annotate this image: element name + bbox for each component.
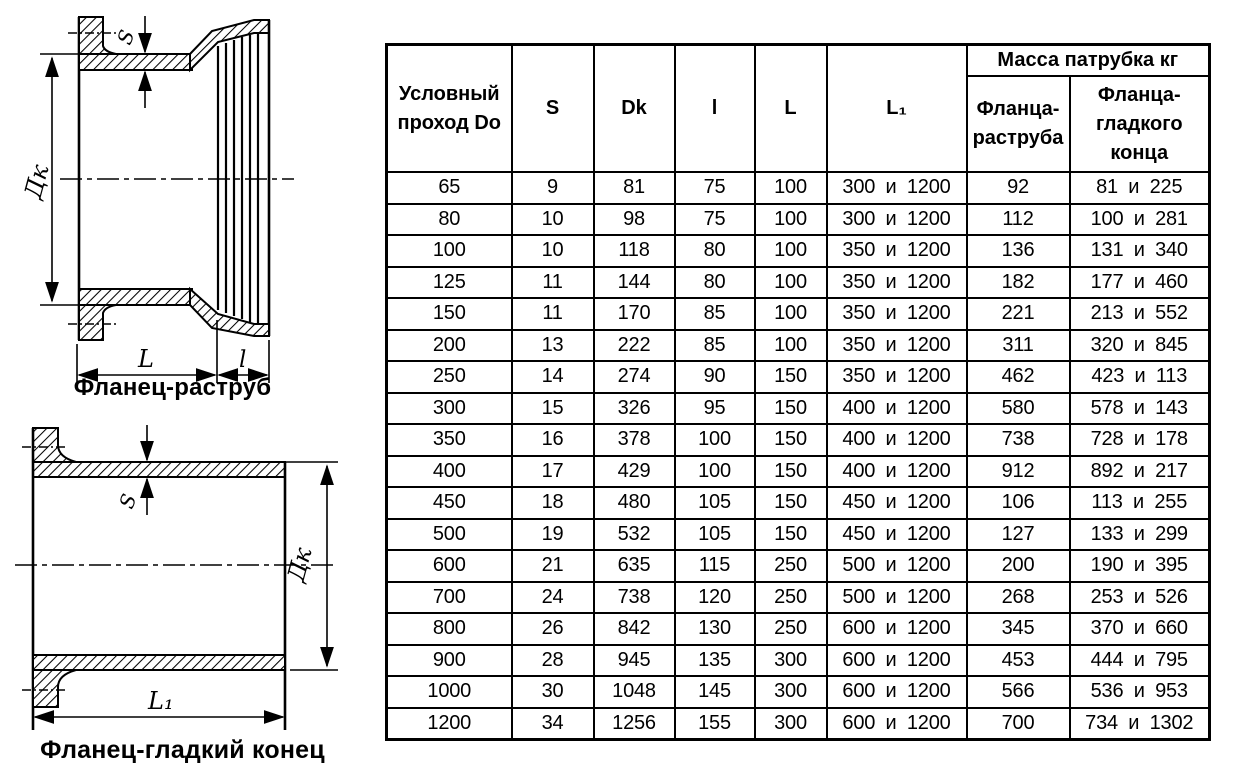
- col-header-l-big: L: [755, 45, 827, 173]
- table-cell: 28: [512, 645, 594, 677]
- table-cell: 150: [755, 519, 827, 551]
- table-cell: 26: [512, 613, 594, 645]
- table-cell: 150: [755, 456, 827, 488]
- s-label: S: [112, 27, 139, 48]
- table-cell: 600 и 1200: [827, 645, 967, 677]
- table-cell: 118: [594, 235, 675, 267]
- table-cell: 345: [967, 613, 1070, 645]
- col-header-l1: L₁: [827, 45, 967, 173]
- table-cell: 900: [387, 645, 512, 677]
- table-cell: 600: [387, 550, 512, 582]
- table-cell: 320 и 845: [1070, 330, 1210, 362]
- table-cell: 423 и 113: [1070, 361, 1210, 393]
- s-label: S: [114, 491, 141, 512]
- flange-plain-end-drawing: S Дк L₁: [0, 415, 345, 745]
- table-cell: 120: [675, 582, 755, 614]
- table-cell: 536 и 953: [1070, 676, 1210, 708]
- table-cell: 136: [967, 235, 1070, 267]
- table-cell: 80: [675, 235, 755, 267]
- table-cell: 1000: [387, 676, 512, 708]
- table-cell: 566: [967, 676, 1070, 708]
- l1-dimension: L₁: [35, 687, 283, 717]
- table-cell: 100 и 281: [1070, 204, 1210, 236]
- table-cell: 462: [967, 361, 1070, 393]
- table-cell: 150: [755, 424, 827, 456]
- caption-flange-socket: Фланец-раструб: [25, 374, 320, 402]
- table-cell: 145: [675, 676, 755, 708]
- table-cell: 400 и 1200: [827, 393, 967, 425]
- table-cell: 11: [512, 267, 594, 299]
- table-cell: 350 и 1200: [827, 330, 967, 362]
- table-cell: 150: [755, 393, 827, 425]
- table-cell: 400: [387, 456, 512, 488]
- table-cell: 100: [755, 204, 827, 236]
- table-cell: 10: [512, 204, 594, 236]
- col-header-uslovny-prohod: Условный проход Do: [387, 45, 512, 173]
- table-cell: 112: [967, 204, 1070, 236]
- table-cell: 450 и 1200: [827, 487, 967, 519]
- table-cell: 144: [594, 267, 675, 299]
- table-cell: 300 и 1200: [827, 204, 967, 236]
- table-cell: 945: [594, 645, 675, 677]
- table-cell: 95: [675, 393, 755, 425]
- table-cell: 738: [594, 582, 675, 614]
- table-row: 1251114480100350 и 1200182177 и 460: [387, 267, 1210, 299]
- dk-label: Дк: [18, 161, 54, 203]
- col-header-l-small: l: [675, 45, 755, 173]
- table-cell: 250: [755, 582, 827, 614]
- table-cell: 125: [387, 267, 512, 299]
- table-row: 80026842130250600 и 1200345370 и 660: [387, 613, 1210, 645]
- table-cell: 9: [512, 172, 594, 204]
- table-cell: 150: [387, 298, 512, 330]
- table-cell: 700: [387, 582, 512, 614]
- table-cell: 370 и 660: [1070, 613, 1210, 645]
- table-cell: 105: [675, 487, 755, 519]
- table-row: 2001322285100350 и 1200311320 и 845: [387, 330, 1210, 362]
- table-cell: 600 и 1200: [827, 613, 967, 645]
- table-row: 2501427490150350 и 1200462423 и 113: [387, 361, 1210, 393]
- table-cell: 98: [594, 204, 675, 236]
- table-cell: 34: [512, 708, 594, 740]
- table-cell: 912: [967, 456, 1070, 488]
- table-row: 35016378100150400 и 1200738728 и 178: [387, 424, 1210, 456]
- dk-label: Дк: [281, 544, 317, 586]
- table-cell: 100: [387, 235, 512, 267]
- table-cell: 350 и 1200: [827, 361, 967, 393]
- table-cell: 100: [755, 330, 827, 362]
- table-row: 45018480105150450 и 1200106113 и 255: [387, 487, 1210, 519]
- caption-flange-plain-end: Фланец-гладкий конец: [15, 736, 350, 765]
- table-cell: 635: [594, 550, 675, 582]
- table-cell: 400 и 1200: [827, 456, 967, 488]
- table-body: 6598175100300 и 12009281 и 2258010987510…: [387, 172, 1210, 740]
- table-cell: 300 и 1200: [827, 172, 967, 204]
- l-big-label: L: [137, 345, 154, 373]
- table-cell: 24: [512, 582, 594, 614]
- flange-bottom-block: [79, 305, 116, 340]
- table-cell: 105: [675, 519, 755, 551]
- table-cell: 700: [967, 708, 1070, 740]
- table-cell: 842: [594, 613, 675, 645]
- table-cell: 1048: [594, 676, 675, 708]
- table-cell: 268: [967, 582, 1070, 614]
- table-cell: 200: [967, 550, 1070, 582]
- table-cell: 221: [967, 298, 1070, 330]
- table-cell: 131 и 340: [1070, 235, 1210, 267]
- table-cell: 190 и 395: [1070, 550, 1210, 582]
- table-cell: 100: [755, 298, 827, 330]
- pipe-wall-top: [33, 462, 285, 477]
- table-cell: 400 и 1200: [827, 424, 967, 456]
- table-cell: 500 и 1200: [827, 550, 967, 582]
- table-row: 1501117085100350 и 1200221213 и 552: [387, 298, 1210, 330]
- table-cell: 429: [594, 456, 675, 488]
- table-cell: 734 и 1302: [1070, 708, 1210, 740]
- table-row: 80109875100300 и 1200112100 и 281: [387, 204, 1210, 236]
- table-cell: 13: [512, 330, 594, 362]
- table-cell: 80: [387, 204, 512, 236]
- pipe-wall-top: [79, 54, 192, 70]
- table-cell: 80: [675, 267, 755, 299]
- table-cell: 222: [594, 330, 675, 362]
- flange-socket-drawing: Дк S L l: [2, 2, 347, 402]
- table-cell: 500 и 1200: [827, 582, 967, 614]
- table-cell: 728 и 178: [1070, 424, 1210, 456]
- table-row: 1200341256155300600 и 1200700734 и 1302: [387, 708, 1210, 740]
- table-row: 60021635115250500 и 1200200190 и 395: [387, 550, 1210, 582]
- table-cell: 100: [755, 172, 827, 204]
- table-cell: 106: [967, 487, 1070, 519]
- table-cell: 127: [967, 519, 1070, 551]
- table-cell: 253 и 526: [1070, 582, 1210, 614]
- l1-label: L₁: [147, 687, 174, 715]
- table-cell: 92: [967, 172, 1070, 204]
- table-cell: 16: [512, 424, 594, 456]
- table-cell: 450 и 1200: [827, 519, 967, 551]
- table-cell: 10: [512, 235, 594, 267]
- table-cell: 250: [387, 361, 512, 393]
- table-cell: 65: [387, 172, 512, 204]
- table-row: 90028945135300600 и 1200453444 и 795: [387, 645, 1210, 677]
- table-cell: 200: [387, 330, 512, 362]
- table-cell: 326: [594, 393, 675, 425]
- pipe-wall-bottom: [79, 289, 192, 305]
- l-small-label: l: [239, 347, 246, 373]
- table-row: 6598175100300 и 12009281 и 225: [387, 172, 1210, 204]
- table-cell: 133 и 299: [1070, 519, 1210, 551]
- table-row: 50019532105150450 и 1200127133 и 299: [387, 519, 1210, 551]
- table-cell: 350 и 1200: [827, 235, 967, 267]
- table-cell: 213 и 552: [1070, 298, 1210, 330]
- table-cell: 800: [387, 613, 512, 645]
- table-row: 3001532695150400 и 1200580578 и 143: [387, 393, 1210, 425]
- table-cell: 11: [512, 298, 594, 330]
- table-cell: 892 и 217: [1070, 456, 1210, 488]
- table-cell: 580: [967, 393, 1070, 425]
- table-cell: 155: [675, 708, 755, 740]
- table-cell: 81: [594, 172, 675, 204]
- table-cell: 300: [755, 676, 827, 708]
- table-cell: 100: [755, 235, 827, 267]
- table-cell: 350 и 1200: [827, 298, 967, 330]
- table-cell: 17: [512, 456, 594, 488]
- table-cell: 1200: [387, 708, 512, 740]
- table-cell: 135: [675, 645, 755, 677]
- table-cell: 30: [512, 676, 594, 708]
- flange-bottom-block: [33, 670, 76, 707]
- table-cell: 15: [512, 393, 594, 425]
- table-cell: 578 и 143: [1070, 393, 1210, 425]
- table-cell: 100: [675, 456, 755, 488]
- flange-top-block: [33, 428, 76, 462]
- table-cell: 19: [512, 519, 594, 551]
- table-cell: 300: [755, 708, 827, 740]
- table-cell: 81 и 225: [1070, 172, 1210, 204]
- table-cell: 177 и 460: [1070, 267, 1210, 299]
- table-cell: 113 и 255: [1070, 487, 1210, 519]
- pipe-spec-table: Условный проход Do S Dk l L L₁ Масса пат…: [385, 43, 1211, 741]
- table-cell: 300: [387, 393, 512, 425]
- mass-col-gladkogo-konca: Фланца- гладкого конца: [1070, 76, 1210, 172]
- dk-dimension: Дк: [281, 466, 338, 670]
- table-row: 40017429100150400 и 1200912892 и 217: [387, 456, 1210, 488]
- col-header-s: S: [512, 45, 594, 173]
- table-cell: 532: [594, 519, 675, 551]
- flange-top-block: [79, 17, 116, 54]
- table-cell: 100: [675, 424, 755, 456]
- table-cell: 600 и 1200: [827, 676, 967, 708]
- table-cell: 274: [594, 361, 675, 393]
- table-cell: 1256: [594, 708, 675, 740]
- table-row: 1001011880100350 и 1200136131 и 340: [387, 235, 1210, 267]
- table-cell: 21: [512, 550, 594, 582]
- table-cell: 75: [675, 204, 755, 236]
- table-cell: 150: [755, 361, 827, 393]
- table-cell: 500: [387, 519, 512, 551]
- table-cell: 18: [512, 487, 594, 519]
- col-header-dk: Dk: [594, 45, 675, 173]
- table-cell: 480: [594, 487, 675, 519]
- table-cell: 100: [755, 267, 827, 299]
- table-cell: 250: [755, 613, 827, 645]
- table-cell: 182: [967, 267, 1070, 299]
- mass-group-header: Масса патрубка кг: [967, 45, 1210, 77]
- table-cell: 453: [967, 645, 1070, 677]
- table-cell: 75: [675, 172, 755, 204]
- table-cell: 115: [675, 550, 755, 582]
- table-cell: 85: [675, 330, 755, 362]
- table-cell: 150: [755, 487, 827, 519]
- pipe-wall-bottom: [33, 655, 285, 670]
- table-cell: 14: [512, 361, 594, 393]
- table-cell: 300: [755, 645, 827, 677]
- table-cell: 311: [967, 330, 1070, 362]
- table-cell: 600 и 1200: [827, 708, 967, 740]
- table-cell: 250: [755, 550, 827, 582]
- table-row: 70024738120250500 и 1200268253 и 526: [387, 582, 1210, 614]
- table-cell: 130: [675, 613, 755, 645]
- table-cell: 350 и 1200: [827, 267, 967, 299]
- table-cell: 738: [967, 424, 1070, 456]
- table-cell: 85: [675, 298, 755, 330]
- table-cell: 444 и 795: [1070, 645, 1210, 677]
- table-cell: 90: [675, 361, 755, 393]
- table-cell: 170: [594, 298, 675, 330]
- mass-col-rastruba: Фланца- раструба: [967, 76, 1070, 172]
- table-cell: 450: [387, 487, 512, 519]
- table-cell: 350: [387, 424, 512, 456]
- table-row: 1000301048145300600 и 1200566536 и 953: [387, 676, 1210, 708]
- table-cell: 378: [594, 424, 675, 456]
